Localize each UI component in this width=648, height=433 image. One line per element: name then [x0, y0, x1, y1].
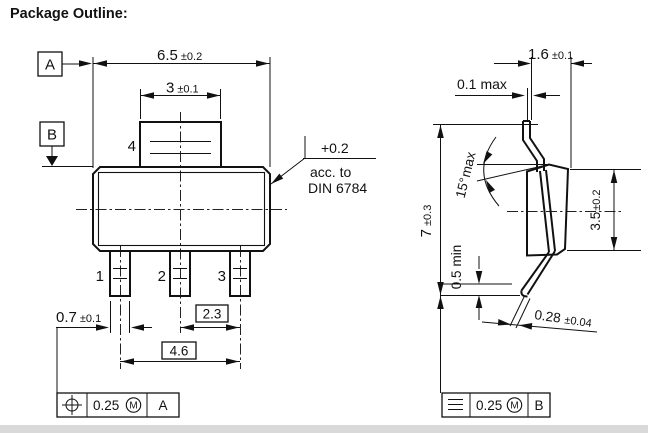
front-frame-tolerance: 0.25 [93, 398, 119, 413]
datum-b-label: B [47, 127, 57, 144]
datum-b-flag: B [40, 122, 93, 167]
edge-chamfer-note: +0.2 acc. to DIN 6784 [271, 136, 376, 196]
dim-lead-pitch-text: 2.3 [203, 307, 222, 322]
dim-lead-width: 0.7±0.1 [56, 301, 152, 333]
pin2-label: 2 [158, 268, 166, 285]
dim-lead-span-text: 4.6 [170, 344, 189, 359]
edge-note-arrow-icon [271, 174, 283, 184]
bottom-lead-foot [521, 251, 555, 297]
mmc-modifier-icon: M [126, 398, 140, 412]
front-centerlines [76, 112, 287, 369]
dim-standoff-text: 0.5min [449, 245, 464, 290]
dim-tip-offset-text: 0.1max [457, 76, 507, 92]
datum-a-flag: A [38, 52, 92, 76]
dim-lead-span: 4.6 [120, 342, 240, 365]
position-symbol-icon [62, 395, 82, 415]
dim-lead-pitch: 2.3 [180, 305, 240, 331]
package-outline-drawing: A B 6.5±0.2 3±0.1 [0, 0, 648, 433]
dim-lead-width-text: 0.7±0.1 [56, 309, 101, 326]
scan-edge [0, 425, 648, 433]
dim-standoff: 0.5min [449, 245, 482, 320]
edge-note-tol: +0.2 [321, 140, 349, 156]
dim-tab-thickness-text: 1.6±0.1 [528, 46, 573, 63]
datum-b-triangle-icon [46, 156, 58, 166]
edge-note-line2: DIN 6784 [308, 180, 367, 196]
mmc-modifier-icon: M [507, 398, 521, 412]
dim-body-width-text: 6.5±0.2 [157, 47, 202, 64]
pin4-label: 4 [128, 138, 136, 155]
symmetry-symbol-icon [448, 400, 463, 410]
pin1-label: 1 [96, 268, 104, 285]
side-view: 1.6±0.1 0.1max 7±0.3 0.5min [418, 46, 641, 417]
edge-note-line1: acc. to [310, 164, 351, 180]
front-frame-datum: A [158, 398, 167, 413]
dim-tab-width-text: 3±0.1 [166, 80, 199, 97]
dim-height-text: 7±0.3 [418, 205, 435, 238]
front-tolerance-frame: 0.25 M A [57, 328, 179, 418]
drawing-page: Package Outline: A [0, 0, 648, 433]
dim-body-thickness-text: 3.5±0.2 [588, 189, 603, 230]
svg-text:M: M [129, 401, 137, 412]
dim-body-width: 6.5±0.2 [93, 47, 270, 168]
dim-lead-thickness-text: 0.28±0.04 [534, 307, 593, 330]
svg-text:M: M [510, 401, 518, 412]
dim-body-thickness: 3.5±0.2 [567, 169, 641, 251]
dim-lead-thickness: 0.28±0.04 [482, 297, 597, 332]
side-frame-tolerance: 0.25 [476, 398, 502, 413]
side-frame-datum: B [534, 398, 543, 413]
dim-tip-offset: 0.1max [455, 76, 560, 99]
side-package-profile [521, 121, 568, 297]
pin-number-labels: 4 1 2 3 [96, 138, 226, 285]
dim-tab-thickness: 1.6±0.1 [494, 46, 592, 168]
pin3-label: 3 [218, 268, 226, 285]
front-view: A B 6.5±0.2 3±0.1 [38, 47, 376, 417]
dim-draft-angle: 15°max [453, 137, 549, 206]
dim-draft-angle-text: 15°max [453, 150, 479, 199]
datum-a-label: A [45, 57, 55, 74]
side-tolerance-frame: 0.25 M B [442, 393, 550, 417]
datum-a-arrow-icon [79, 60, 92, 67]
